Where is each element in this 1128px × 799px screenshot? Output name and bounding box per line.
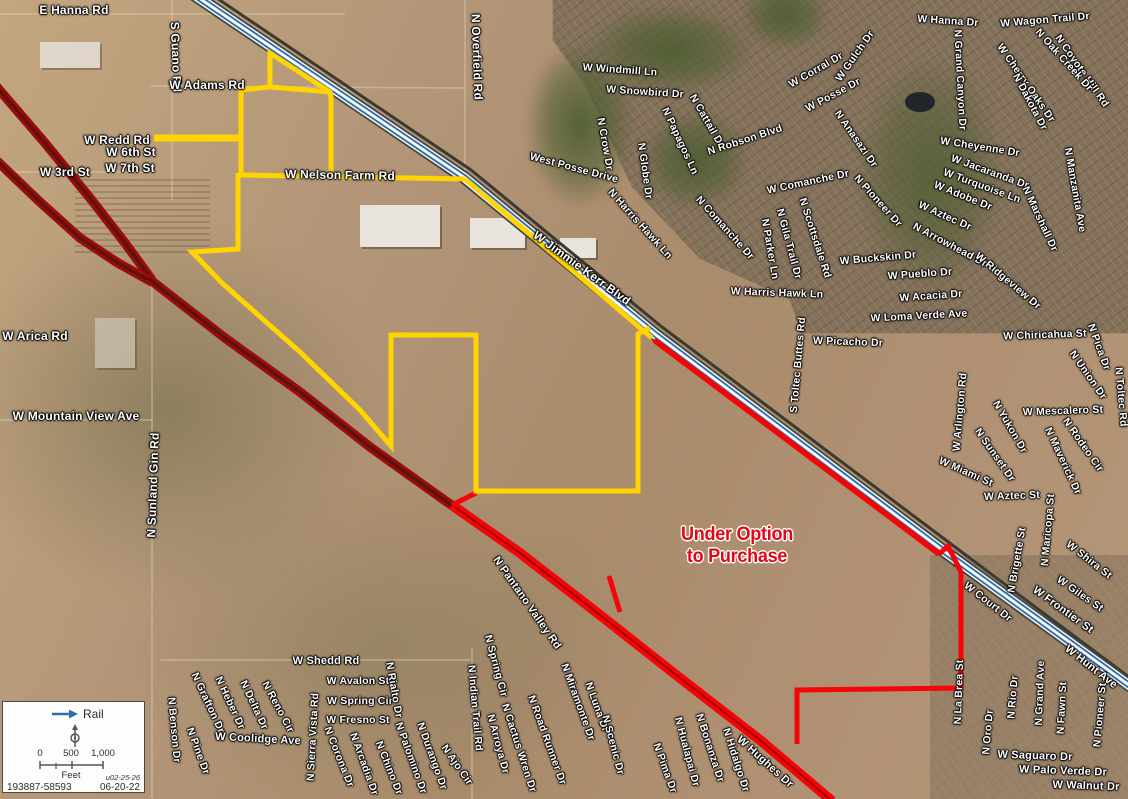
legend: Rail 0 500 1,000 Feet u02-25-26 193887-5… <box>2 701 145 793</box>
street-label: W Shedd Rd <box>293 655 360 667</box>
rail-legend-label: Rail <box>83 707 104 721</box>
scale-tick-1000: 1,000 <box>91 748 115 759</box>
street-label: W Picacho Dr <box>813 335 883 349</box>
street-label: W 6th St <box>106 145 156 159</box>
scale-tick-0: 0 <box>37 748 42 759</box>
under-option-annotation: Under Option to Purchase <box>681 524 793 568</box>
red-boundary <box>797 546 961 744</box>
street-label: W Avalon St <box>327 675 390 687</box>
street-label: W 3rd St <box>40 165 90 179</box>
scale-tick-500: 500 <box>63 748 79 759</box>
street-label: W Walnut Dr <box>1052 779 1120 793</box>
scale-unit-label: Feet <box>61 770 80 781</box>
street-label: W Spring Cir <box>327 695 393 707</box>
street-label: W Mountain View Ave <box>13 409 140 423</box>
street-label: E Hanna Rd <box>39 3 108 17</box>
street-label: W Nelson Farm Rd <box>285 167 395 183</box>
rail-legend-arrow-icon <box>51 708 79 720</box>
legend-note: u02-25-26 <box>106 773 140 782</box>
street-label: W Arica Rd <box>2 329 68 343</box>
scale-bar <box>37 760 109 770</box>
annotation-line1: Under Option <box>681 524 793 546</box>
street-label: N La Brea St <box>952 659 966 724</box>
annotation-line2: to Purchase <box>681 546 793 568</box>
yellow-boundary <box>192 173 650 491</box>
street-label: W Adams Rd <box>169 78 245 92</box>
red-boundary-spur <box>609 576 620 612</box>
legend-date: 06-20-22 <box>100 782 140 793</box>
street-label: W 7th St <box>105 161 155 175</box>
red-boundary <box>452 493 476 505</box>
street-label: W Aztec St <box>984 489 1040 503</box>
north-arrow-icon <box>66 724 84 748</box>
street-label: N Grand Ave <box>1033 660 1047 725</box>
street-label: N Overfield Rd <box>469 14 486 101</box>
map-canvas: E Hanna RdS Guano RdW Adams RdW Redd RdW… <box>0 0 1128 799</box>
legend-reference-number: 193887-58593 <box>7 782 72 793</box>
street-label: W Saguaro Dr <box>997 749 1073 764</box>
street-label: W Fresno St <box>326 714 389 726</box>
